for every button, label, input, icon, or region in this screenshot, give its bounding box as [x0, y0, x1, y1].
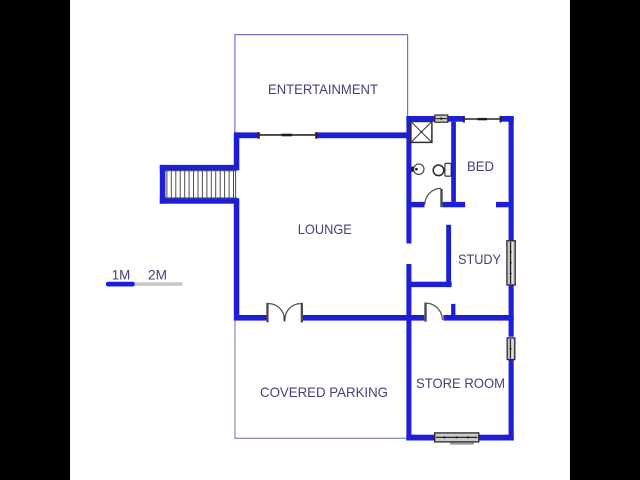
svg-text:BED: BED: [467, 158, 494, 174]
svg-text:2M: 2M: [148, 267, 167, 283]
svg-text:COVERED PARKING: COVERED PARKING: [260, 384, 388, 400]
svg-text:STORE ROOM: STORE ROOM: [416, 375, 505, 391]
svg-text:STUDY: STUDY: [458, 251, 502, 267]
svg-text:ENTERTAINMENT: ENTERTAINMENT: [268, 81, 378, 97]
svg-text:1M: 1M: [112, 267, 131, 283]
svg-text:LOUNGE: LOUNGE: [298, 221, 352, 237]
